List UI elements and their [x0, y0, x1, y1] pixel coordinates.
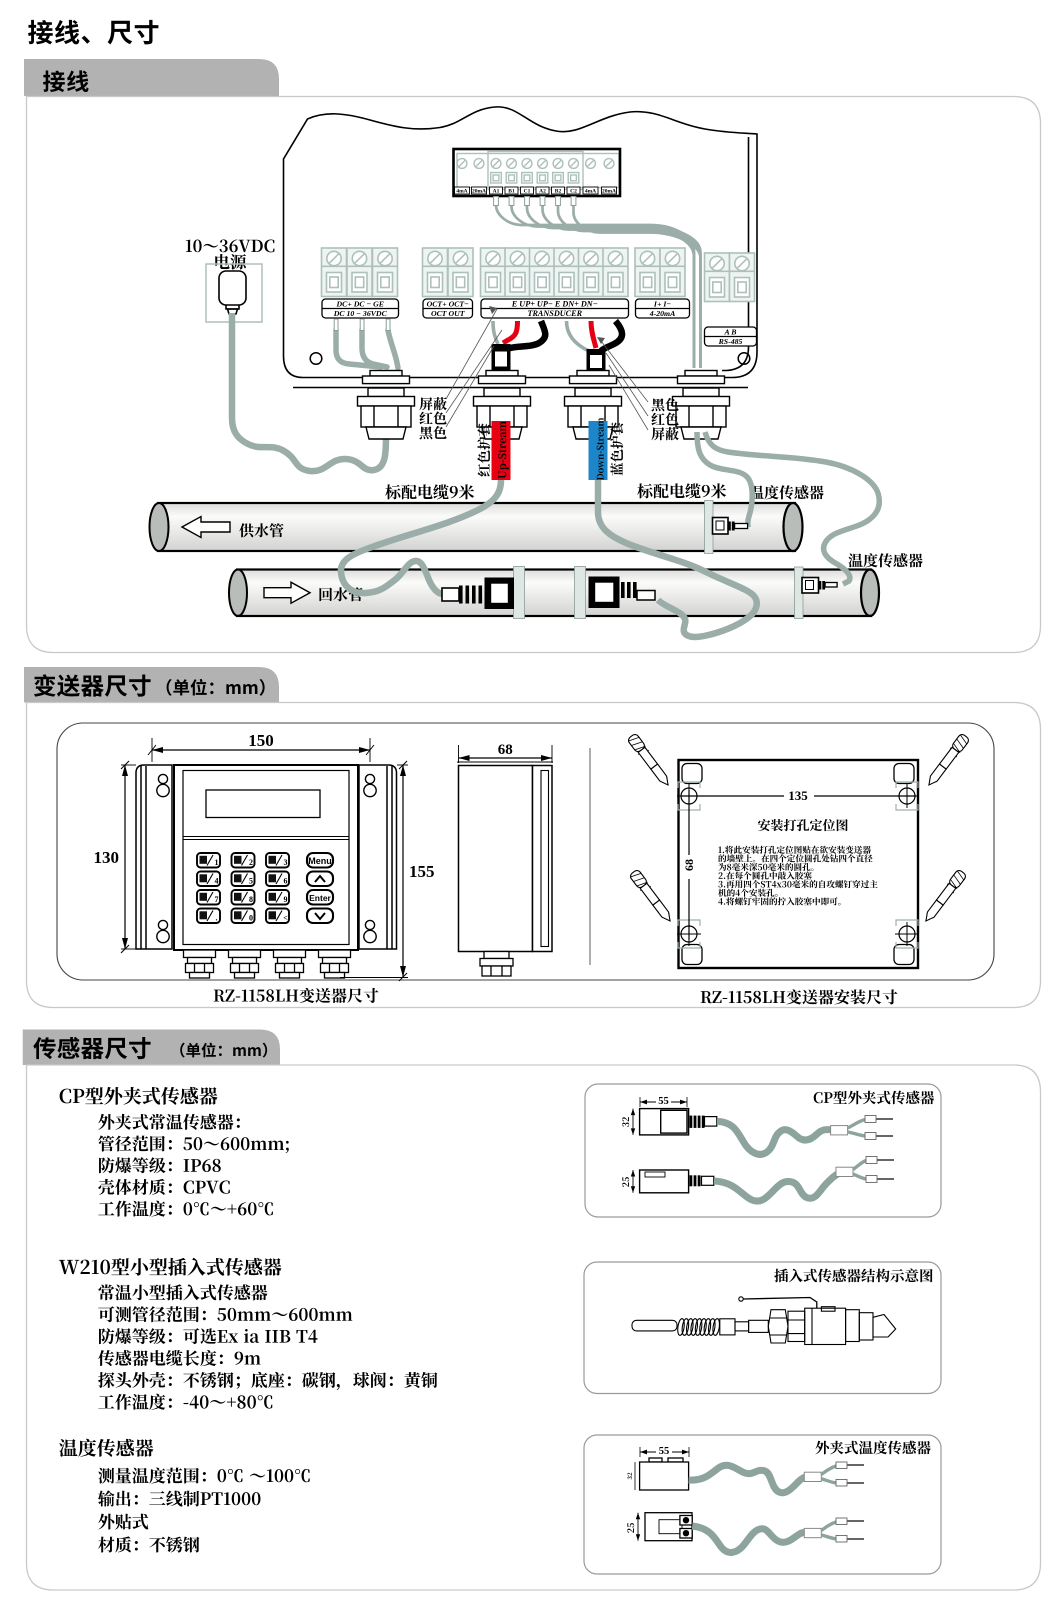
svg-text:2: 2	[249, 858, 253, 867]
svg-text:Menu: Menu	[308, 856, 332, 866]
svg-text:8: 8	[249, 895, 253, 904]
svg-text:DC+ DC − GE: DC+ DC − GE	[335, 300, 384, 309]
svg-text:68: 68	[498, 742, 513, 758]
svg-text:135: 135	[788, 788, 808, 803]
svg-text:155: 155	[409, 862, 435, 881]
svg-text:55: 55	[658, 1096, 669, 1107]
svg-text:7: 7	[215, 895, 219, 904]
svg-text:.: .	[216, 914, 218, 923]
svg-text:Enter: Enter	[309, 893, 331, 903]
svg-text:4mA: 4mA	[585, 189, 596, 195]
svg-text:C1: C1	[524, 189, 531, 195]
svg-text:RS-485: RS-485	[718, 337, 743, 346]
svg-text:E UP+ UP− E D: E UP+ UP− E DN+ DN−	[511, 300, 598, 309]
svg-text:20mA: 20mA	[602, 189, 616, 195]
svg-text:DC 10 − 36VDC: DC 10 − 36VDC	[333, 309, 388, 318]
svg-text:4: 4	[215, 877, 219, 886]
svg-text:0: 0	[249, 914, 253, 923]
svg-text:6: 6	[284, 877, 288, 886]
svg-text:9: 9	[284, 895, 288, 904]
svg-text:20mA: 20mA	[472, 189, 486, 195]
svg-text:<: <	[283, 914, 288, 923]
svg-text:4mA: 4mA	[456, 189, 467, 195]
svg-text:OCT OUT: OCT OUT	[431, 309, 466, 318]
svg-text:150: 150	[248, 731, 274, 750]
svg-text:3: 3	[284, 858, 288, 867]
svg-text:OCT+ OCT−: OCT+ OCT−	[427, 300, 470, 309]
svg-text:B2: B2	[555, 189, 562, 195]
svg-text:A1: A1	[493, 189, 500, 195]
svg-text:1: 1	[215, 858, 219, 867]
svg-text:B1: B1	[508, 189, 515, 195]
svg-text:4-20mA: 4-20mA	[649, 309, 676, 318]
svg-text:130: 130	[94, 848, 120, 867]
svg-text:C2: C2	[570, 189, 577, 195]
svg-text:TRANSDUCER: TRANSDUCER	[527, 309, 582, 318]
svg-text:A B: A B	[724, 328, 737, 337]
svg-text:5: 5	[249, 877, 253, 886]
svg-text:55: 55	[659, 1446, 670, 1457]
svg-text:68: 68	[682, 859, 696, 871]
svg-text:I+ I−: I+ I−	[653, 300, 671, 309]
svg-text:A2: A2	[539, 189, 546, 195]
